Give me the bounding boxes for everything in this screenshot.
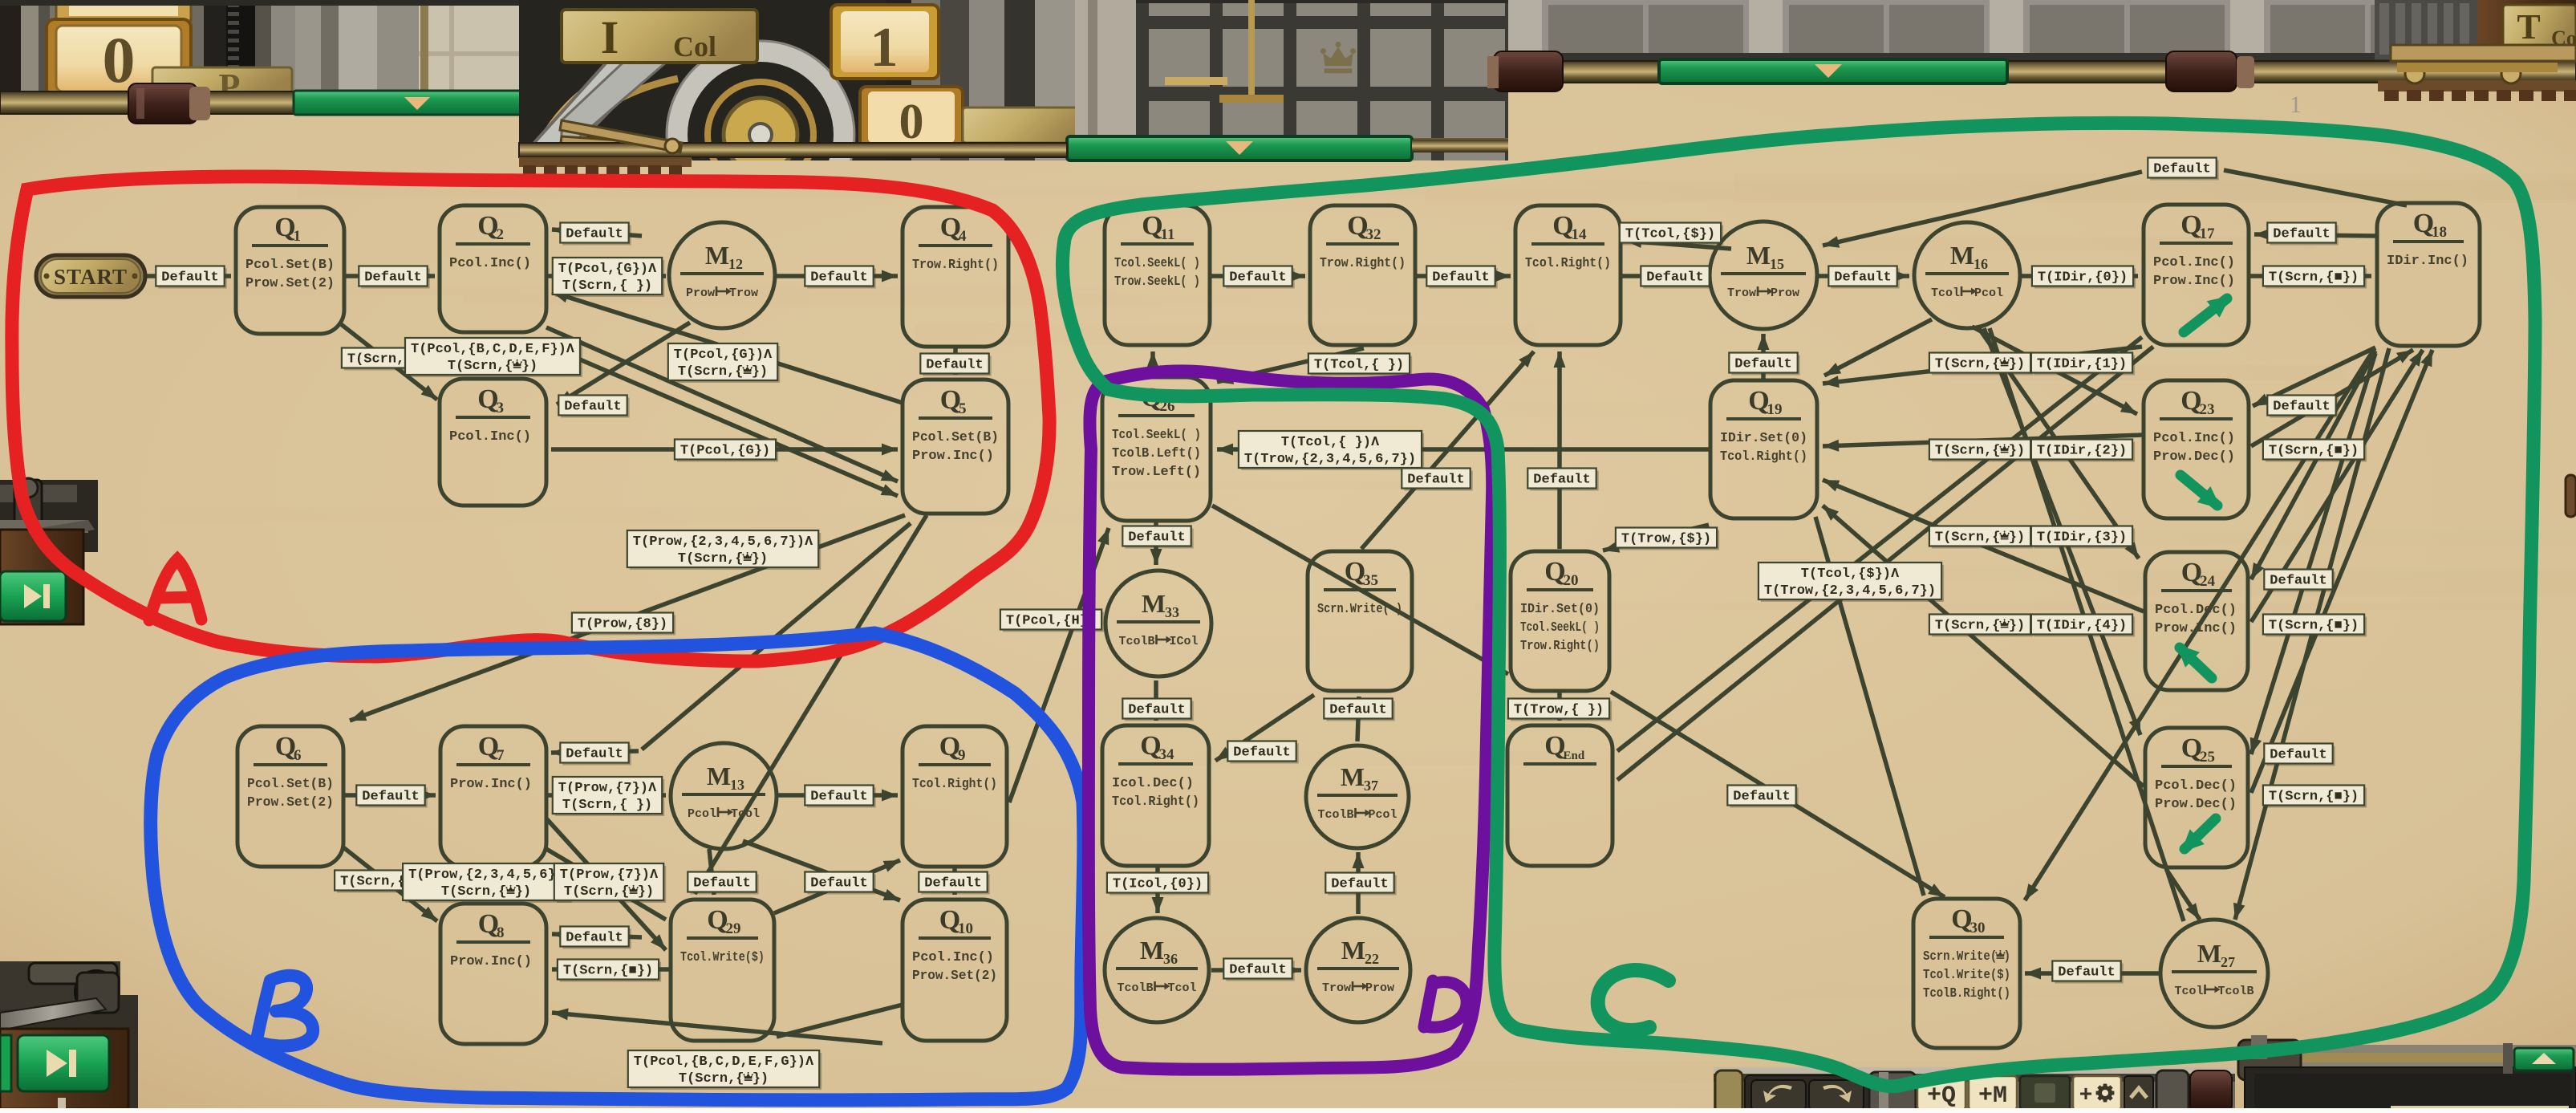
- svg-text:Prow.Set(2): Prow.Set(2): [912, 969, 997, 984]
- svg-text:T(Scrn,{: T(Scrn,{: [1935, 530, 2001, 546]
- svg-text:Default: Default: [161, 270, 218, 286]
- svg-text:6: 6: [294, 747, 302, 764]
- svg-text:11: 11: [1161, 226, 1175, 243]
- svg-text:33: 33: [1165, 604, 1179, 620]
- svg-text:Prow.Set(2): Prow.Set(2): [245, 276, 335, 291]
- svg-text:Col: Col: [673, 30, 716, 63]
- svg-text:Trow.Right(): Trow.Right(): [912, 258, 999, 273]
- svg-text:Default: Default: [362, 790, 419, 805]
- svg-text:0: 0: [899, 95, 924, 149]
- svg-text:Prow.Inc(): Prow.Inc(): [2153, 274, 2235, 289]
- svg-text:T(Prow,{7})Λ: T(Prow,{7})Λ: [560, 867, 659, 883]
- svg-text:Prow: Prow: [1771, 286, 1799, 300]
- svg-text:Prow.Inc(): Prow.Inc(): [912, 449, 994, 464]
- svg-text:Default: Default: [1734, 357, 1791, 372]
- svg-text:}): }): [2009, 530, 2025, 546]
- svg-text:Prow.Dec(): Prow.Dec(): [2155, 797, 2237, 812]
- svg-text:M: M: [705, 241, 729, 270]
- svg-text:Trow.Right(): Trow.Right(): [1520, 639, 1600, 654]
- svg-text:7: 7: [497, 747, 505, 764]
- svg-text:Default: Default: [2273, 227, 2330, 242]
- svg-text:T(Scrn,{ }): T(Scrn,{ }): [562, 798, 652, 813]
- svg-text:M: M: [1142, 589, 1166, 618]
- svg-text:Tcol.SeekL( ): Tcol.SeekL( ): [1520, 620, 1600, 636]
- svg-text:I: I: [601, 11, 619, 63]
- svg-text:T(Scrn,{■}): T(Scrn,{■}): [2269, 270, 2359, 286]
- svg-text:Trow: Trow: [1727, 286, 1756, 300]
- svg-text:Trow: Trow: [1322, 981, 1351, 995]
- svg-text:Tcol.Right(): Tcol.Right(): [1525, 256, 1611, 271]
- svg-text:T(Scrn,{: T(Scrn,{: [564, 884, 630, 900]
- svg-text:Trow.Right(): Trow.Right(): [1320, 256, 1406, 271]
- svg-text:8: 8: [497, 924, 505, 941]
- svg-text:Default: Default: [2270, 748, 2327, 763]
- svg-text:Default: Default: [1834, 270, 1891, 286]
- svg-text:Prow: Prow: [1365, 981, 1394, 995]
- svg-text:Tcol.Write($): Tcol.Write($): [680, 950, 765, 965]
- svg-text:Tcol.Right(): Tcol.Right(): [1720, 449, 1807, 465]
- svg-text:T(IDir,{2}): T(IDir,{2}): [2037, 444, 2127, 459]
- svg-text:3: 3: [497, 400, 505, 416]
- svg-text:M: M: [1341, 936, 1365, 965]
- svg-text:T(IDir,{3}): T(IDir,{3}): [2037, 530, 2127, 546]
- svg-text:IDir.Set(0): IDir.Set(0): [1720, 431, 1807, 446]
- svg-text:Pcol: Pcol: [688, 807, 716, 821]
- svg-text:Prow.Set(2): Prow.Set(2): [247, 795, 334, 810]
- svg-text:Default: Default: [2270, 574, 2327, 589]
- svg-text:}): }): [521, 359, 538, 374]
- svg-text:T(Trow,{2,3,4,5,6,7}): T(Trow,{2,3,4,5,6,7}): [1764, 583, 1936, 599]
- svg-text:Default: Default: [2273, 400, 2330, 415]
- svg-text:Default: Default: [566, 227, 623, 242]
- svg-text:T(Scrn,{: T(Scrn,{: [1935, 619, 2001, 634]
- svg-text:TcolB: TcolB: [1118, 981, 1154, 995]
- svg-text:+: +: [2079, 1083, 2093, 1108]
- svg-text:23: 23: [2200, 401, 2215, 418]
- svg-text:Trow.SeekL( ): Trow.SeekL( ): [1114, 274, 1200, 290]
- svg-text:TcolB: TcolB: [2218, 985, 2254, 998]
- svg-text:T(Scrn,{: T(Scrn,{: [347, 352, 413, 368]
- svg-text:T(Trow,{ }): T(Trow,{ }): [1514, 703, 1604, 718]
- svg-text:Tcol.Right(): Tcol.Right(): [912, 777, 997, 792]
- svg-text:Default: Default: [1331, 877, 1388, 892]
- svg-text:1: 1: [2290, 91, 2302, 118]
- svg-text:T(Pcol,{G}): T(Pcol,{G}): [680, 444, 770, 459]
- svg-text:T(Icol,{0}): T(Icol,{0}): [1113, 877, 1203, 892]
- svg-text:Icol.Dec(): Icol.Dec(): [1112, 776, 1194, 791]
- svg-text:T(Scrn,{■}): T(Scrn,{■}): [2269, 790, 2359, 805]
- svg-text:10: 10: [958, 920, 973, 937]
- svg-text:T(Prow,{2,3,4,5,6,7})Λ: T(Prow,{2,3,4,5,6,7})Λ: [633, 534, 813, 550]
- svg-text:Scrn.Write(: Scrn.Write(: [1923, 949, 1997, 965]
- svg-text:27: 27: [2221, 954, 2235, 970]
- svg-text:1: 1: [870, 17, 899, 79]
- svg-text:}): }): [753, 1071, 769, 1087]
- svg-text:Scrn.Write( ): Scrn.Write( ): [1317, 602, 1402, 617]
- svg-text:M: M: [1341, 762, 1365, 791]
- svg-text:Default: Default: [810, 876, 867, 892]
- svg-text:Pcol.Inc(): Pcol.Inc(): [449, 256, 531, 271]
- svg-text:T(Scrn,{ }): T(Scrn,{ }): [562, 278, 652, 294]
- svg-text:+Q: +Q: [1927, 1083, 1956, 1110]
- svg-text:T(Pcol,{B,C,D,E,F,G})Λ: T(Pcol,{B,C,D,E,F,G})Λ: [634, 1054, 814, 1070]
- svg-text:T(Scrn,{■}): T(Scrn,{■}): [2269, 444, 2359, 459]
- svg-text:T: T: [2517, 7, 2540, 47]
- svg-text:Default: Default: [693, 876, 750, 892]
- svg-text:Default: Default: [564, 400, 621, 415]
- svg-text:Tcol: Tcol: [1931, 286, 1960, 300]
- svg-text:T(Pcol,{G})Λ: T(Pcol,{G})Λ: [674, 347, 773, 363]
- svg-text:18: 18: [2432, 224, 2447, 241]
- svg-text:Pcol: Pcol: [1369, 808, 1398, 822]
- svg-text:Pcol.Inc(): Pcol.Inc(): [912, 950, 994, 965]
- svg-text:Default: Default: [1407, 473, 1464, 488]
- svg-text:T(Scrn,{: T(Scrn,{: [441, 884, 507, 900]
- svg-text:Default: Default: [1533, 473, 1590, 488]
- svg-text:Default: Default: [1128, 703, 1185, 718]
- svg-text:T(Scrn,{: T(Scrn,{: [1935, 444, 2001, 459]
- svg-text:+M: +M: [1978, 1083, 2007, 1110]
- svg-text:T(Prow,{8}): T(Prow,{8}): [578, 617, 667, 632]
- svg-text:ICol: ICol: [1170, 635, 1199, 648]
- svg-text:Default: Default: [1432, 270, 1489, 286]
- svg-text:Pcol.Dec(): Pcol.Dec(): [2155, 603, 2237, 618]
- svg-text:}): }): [752, 551, 768, 567]
- svg-text:Default: Default: [364, 270, 421, 286]
- svg-text:Tcol: Tcol: [731, 807, 760, 821]
- svg-text:T(Scrn,{: T(Scrn,{: [1935, 357, 2001, 372]
- svg-text:Prow: Prow: [686, 286, 715, 300]
- svg-text:Default: Default: [1128, 530, 1185, 546]
- svg-text:T(IDir,{4}): T(IDir,{4}): [2037, 619, 2127, 634]
- svg-text:T(IDir,{1}): T(IDir,{1}): [2037, 357, 2127, 372]
- svg-text:T(Tcol,{$}): T(Tcol,{$}): [1625, 227, 1715, 242]
- svg-text:}): }): [752, 364, 768, 380]
- svg-text:Default: Default: [924, 876, 981, 892]
- svg-text:}): }): [2009, 357, 2025, 372]
- svg-text:20: 20: [1564, 572, 1579, 589]
- svg-text:Pcol.Set(B): Pcol.Set(B): [245, 258, 335, 273]
- svg-text:T(Prow,{2,3,4,5,6}): T(Prow,{2,3,4,5,6}): [408, 867, 564, 883]
- svg-text:9: 9: [958, 747, 966, 764]
- svg-text:Default: Default: [1329, 703, 1386, 718]
- svg-text:32: 32: [1366, 226, 1381, 243]
- svg-text:TcolB.Right(): TcolB.Right(): [1923, 986, 2010, 1001]
- svg-text:T(Pcol,{B,C,D,E,F})Λ: T(Pcol,{B,C,D,E,F})Λ: [411, 342, 575, 357]
- svg-text:1: 1: [294, 228, 302, 245]
- svg-text:Default: Default: [566, 931, 623, 946]
- svg-text:Prow.Inc(): Prow.Inc(): [450, 954, 532, 969]
- svg-text:T(Scrn,{: T(Scrn,{: [678, 551, 744, 567]
- svg-text:T(Tcol,{ }): T(Tcol,{ }): [1314, 358, 1404, 373]
- svg-text:T(Prow,{7})Λ: T(Prow,{7})Λ: [558, 781, 657, 796]
- svg-text:T(Scrn,{: T(Scrn,{: [448, 359, 513, 374]
- svg-text:30: 30: [1970, 920, 1986, 936]
- svg-text:35: 35: [1363, 572, 1378, 589]
- svg-text:TcolB.Left(): TcolB.Left(): [1112, 446, 1201, 461]
- svg-text:Default: Default: [1229, 270, 1286, 286]
- svg-text:}): }): [515, 884, 531, 900]
- svg-text:Prow.Inc(): Prow.Inc(): [450, 777, 532, 792]
- svg-text:13: 13: [730, 777, 744, 793]
- svg-text:Default: Default: [2153, 162, 2210, 177]
- svg-text:Default: Default: [1233, 745, 1290, 761]
- svg-text:19: 19: [1767, 401, 1783, 418]
- svg-text:Tcol: Tcol: [2175, 985, 2204, 998]
- svg-text:T(Scrn,{: T(Scrn,{: [679, 1071, 744, 1087]
- svg-text:14: 14: [1572, 226, 1588, 243]
- svg-text:}): }): [2009, 444, 2025, 459]
- svg-text:24: 24: [2200, 573, 2216, 590]
- svg-text:Default: Default: [1229, 963, 1286, 978]
- svg-text:29: 29: [726, 920, 741, 937]
- svg-text:Pcol: Pcol: [1974, 286, 2003, 300]
- svg-text:End: End: [1564, 749, 1585, 762]
- svg-text:Pcol.Inc(): Pcol.Inc(): [449, 429, 531, 445]
- svg-text:Default: Default: [1646, 270, 1703, 286]
- svg-text:17: 17: [2200, 225, 2216, 242]
- svg-text:12: 12: [728, 256, 743, 272]
- svg-text:Tcol.SeekL( ): Tcol.SeekL( ): [1112, 428, 1201, 443]
- svg-text:T(Scrn,{■}): T(Scrn,{■}): [2269, 619, 2359, 634]
- svg-text:25: 25: [2200, 749, 2215, 766]
- svg-text:M: M: [707, 762, 731, 790]
- svg-text:IDir.Set(0): IDir.Set(0): [1520, 602, 1600, 617]
- svg-text:Tcol: Tcol: [1168, 981, 1197, 995]
- svg-text:Trow: Trow: [729, 286, 758, 300]
- svg-text:15: 15: [1770, 256, 1784, 272]
- svg-text:T(Pcol,{G})Λ: T(Pcol,{G})Λ: [558, 262, 657, 277]
- svg-text:T(Tcol,{ })Λ: T(Tcol,{ })Λ: [1281, 435, 1380, 450]
- svg-text:22: 22: [1365, 951, 1379, 967]
- svg-text:Tcol.SeekL( ): Tcol.SeekL( ): [1114, 256, 1200, 271]
- svg-text:Pcol.Set(B): Pcol.Set(B): [247, 777, 334, 792]
- svg-text:T(Scrn,{: T(Scrn,{: [678, 364, 744, 380]
- svg-text:M: M: [1746, 241, 1771, 270]
- svg-text:M: M: [1140, 936, 1164, 965]
- svg-text:Default: Default: [566, 747, 623, 762]
- svg-text:36: 36: [1163, 951, 1178, 967]
- svg-text:Pcol.Set(B): Pcol.Set(B): [912, 430, 999, 445]
- svg-text:Default: Default: [926, 358, 983, 373]
- svg-text:T(Scrn,{: T(Scrn,{: [340, 875, 406, 890]
- svg-text:Prow.Dec(): Prow.Dec(): [2153, 449, 2235, 465]
- svg-text:T(Trow,{2,3,4,5,6,7}): T(Trow,{2,3,4,5,6,7}): [1244, 452, 1416, 467]
- svg-text:Tcol.Right(): Tcol.Right(): [1112, 794, 1199, 810]
- svg-text:34: 34: [1159, 746, 1175, 763]
- svg-text:4: 4: [959, 228, 967, 245]
- svg-text:}): }): [2009, 619, 2025, 634]
- svg-text:M: M: [2197, 939, 2221, 968]
- svg-text:Trow.Left(): Trow.Left(): [1112, 465, 1201, 480]
- svg-text:37: 37: [1364, 778, 1378, 794]
- svg-text:Default: Default: [810, 790, 867, 805]
- svg-text:IDir.Inc(): IDir.Inc(): [2387, 254, 2468, 269]
- svg-text:Pcol.Dec(): Pcol.Dec(): [2155, 778, 2237, 794]
- svg-text:T(Pcol,{H}): T(Pcol,{H}): [1006, 614, 1096, 629]
- svg-text:TcolB: TcolB: [1318, 808, 1354, 822]
- svg-text:Default: Default: [1733, 790, 1790, 805]
- svg-text:): ): [2004, 949, 2010, 965]
- svg-text:Pcol.Inc(): Pcol.Inc(): [2153, 255, 2235, 270]
- svg-text:START: START: [54, 265, 128, 289]
- svg-text:Pcol.Inc(): Pcol.Inc(): [2153, 431, 2235, 446]
- svg-text:TcolB: TcolB: [1119, 635, 1155, 648]
- svg-text:5: 5: [959, 400, 967, 417]
- svg-text:T(Tcol,{$})Λ: T(Tcol,{$})Λ: [1801, 567, 1900, 582]
- svg-text:Default: Default: [810, 270, 867, 286]
- svg-text:T(Trow,{$}): T(Trow,{$}): [1621, 532, 1711, 547]
- svg-text:T(IDir,{0}): T(IDir,{0}): [2038, 270, 2128, 286]
- svg-text:2: 2: [497, 226, 505, 243]
- svg-text:Prow.Inc(): Prow.Inc(): [2155, 621, 2237, 636]
- svg-text:16: 16: [1974, 256, 1988, 272]
- svg-text:}): }): [638, 884, 654, 900]
- svg-text:T(Scrn,{■}): T(Scrn,{■}): [563, 964, 653, 979]
- svg-text:Default: Default: [2058, 965, 2115, 981]
- svg-text:Tcol.Write($): Tcol.Write($): [1923, 968, 2010, 983]
- svg-text:M: M: [1950, 241, 1974, 270]
